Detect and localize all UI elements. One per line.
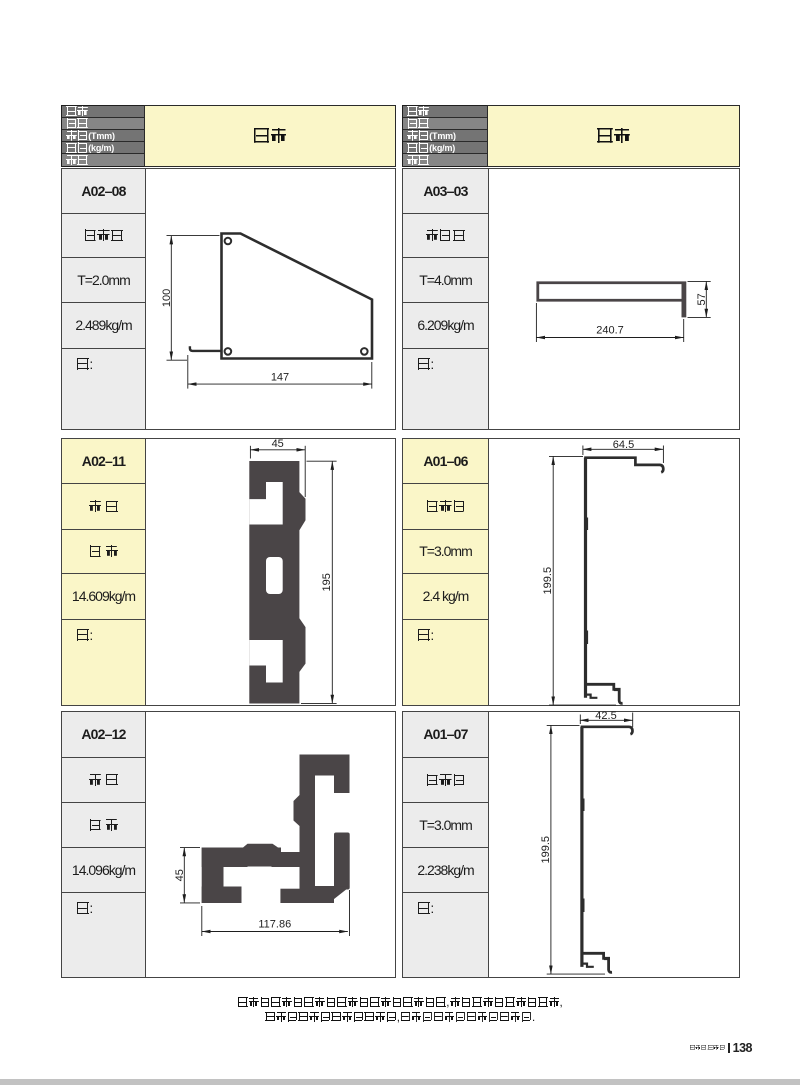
- svg-text:117.86: 117.86: [258, 919, 291, 931]
- svg-text:199.5: 199.5: [542, 567, 554, 595]
- svg-text:195: 195: [321, 573, 333, 591]
- svg-text:45: 45: [272, 438, 284, 450]
- svg-text:100: 100: [161, 289, 173, 307]
- svg-text:240.7: 240.7: [596, 325, 624, 337]
- svg-text:45: 45: [174, 869, 186, 881]
- svg-text:42.5: 42.5: [595, 710, 616, 722]
- svg-text:57: 57: [696, 293, 708, 305]
- svg-text:199.5: 199.5: [540, 836, 552, 864]
- svg-text:64.5: 64.5: [613, 439, 634, 451]
- svg-text:147: 147: [271, 371, 289, 383]
